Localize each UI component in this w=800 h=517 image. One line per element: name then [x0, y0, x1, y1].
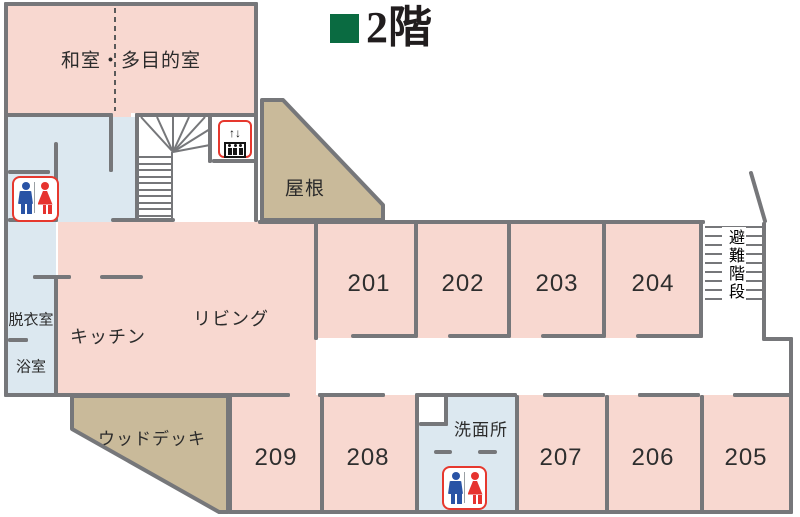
label-emergency-stairs: 避難階段: [722, 227, 746, 303]
room-202-label: 202: [441, 270, 484, 298]
man-body-icon: [18, 191, 33, 204]
room-204-label: 204: [631, 270, 674, 298]
elevator-icon: ↑↓: [218, 120, 252, 158]
label-dressing-room: 脱衣室: [8, 309, 53, 330]
man-leg-icon: [457, 494, 462, 504]
divider-line: [34, 182, 36, 213]
label-wood-deck: ウッドデッキ: [98, 425, 206, 450]
divider-line: [464, 472, 466, 503]
room-206-label: 206: [631, 444, 674, 472]
label-roof: 屋根: [285, 174, 325, 201]
woman-head-icon: [471, 472, 479, 480]
man-head-icon: [22, 182, 30, 190]
down-arrow-icon: ↓: [235, 126, 241, 140]
man-leg-icon: [27, 204, 32, 214]
man-head-icon: [452, 472, 460, 480]
label-washitsu: 和室・多目的室: [61, 46, 201, 73]
title-accent-square: [330, 14, 359, 43]
label-living: リビング: [193, 305, 269, 331]
room-209-label: 209: [254, 444, 297, 472]
label-kitchen: キッチン: [70, 323, 146, 349]
toilet-icon: [442, 466, 487, 510]
room-208-label: 208: [346, 444, 389, 472]
woman-leg-icon: [48, 205, 52, 214]
staircase: [139, 117, 210, 218]
room-201-label: 201: [347, 270, 390, 298]
room-205-label: 205: [724, 444, 767, 472]
woman-head-icon: [41, 182, 49, 190]
man-body-icon: [448, 481, 463, 494]
elevator-arrows: ↑↓: [220, 124, 250, 142]
outer-diagonal-wall: [751, 173, 765, 221]
toilet-icon: [12, 176, 59, 222]
woman-leg-icon: [43, 205, 47, 214]
page-title: 2階: [330, 6, 432, 50]
woman-dress-icon: [468, 481, 483, 495]
person-icon: [233, 144, 237, 155]
floor-plan-2f: 2階 和室・多目的室 屋根 リビング キッチン 脱衣室 浴室 ウッドデッキ 洗面…: [0, 0, 800, 517]
man-leg-icon: [451, 494, 456, 504]
label-bathroom: 浴室: [16, 356, 46, 377]
room-207-label: 207: [539, 444, 582, 472]
elevator-cab-icon: [224, 142, 246, 158]
label-washroom: 洗面所: [454, 416, 508, 441]
floor-title-text: 2階: [366, 6, 432, 50]
woman-leg-icon: [473, 495, 477, 504]
woman-leg-icon: [478, 495, 482, 504]
man-leg-icon: [21, 204, 26, 214]
room-203-label: 203: [535, 270, 578, 298]
person-icon: [239, 144, 243, 155]
woman-dress-icon: [38, 191, 53, 205]
person-icon: [228, 144, 232, 155]
